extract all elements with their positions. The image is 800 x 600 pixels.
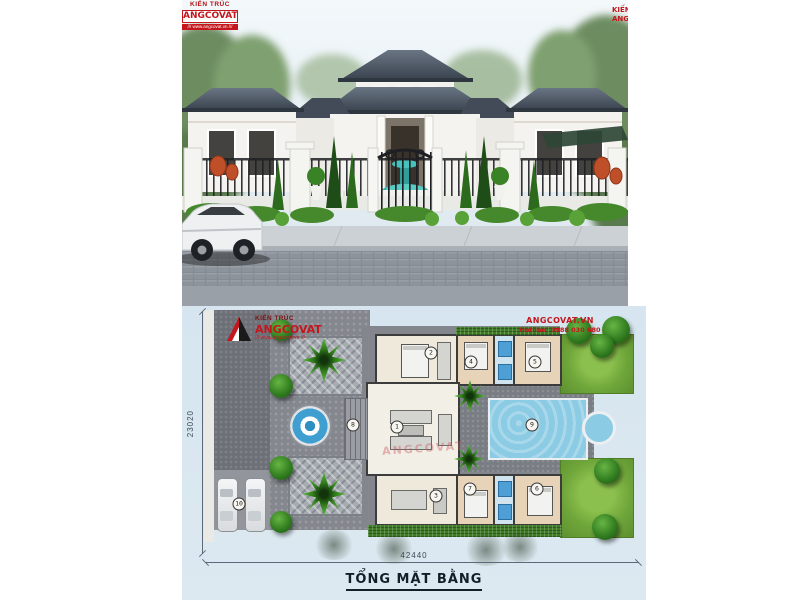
room-marker-5: 5 bbox=[529, 356, 542, 369]
room-marker-1: 1 bbox=[391, 421, 404, 434]
plan-logo-strip: /// www.angcovat.vn /// bbox=[255, 336, 322, 341]
dining-table bbox=[391, 490, 427, 510]
plan-title: TỔNG MẶT BẰNG bbox=[346, 572, 483, 591]
bathtub bbox=[498, 364, 512, 380]
tree bbox=[592, 514, 618, 540]
room-marker-7: 7 bbox=[464, 483, 477, 496]
plan-title-wrap: TỔNG MẶT BẰNG bbox=[182, 570, 646, 591]
swimming-pool bbox=[488, 398, 588, 460]
plan-firm-logo: KIẾN TRÚC ANGCOVAT /// www.angcovat.vn /… bbox=[226, 316, 346, 342]
corner-line2: ANGCOVAT bbox=[612, 15, 628, 24]
dimension-height-label: 23020 bbox=[186, 410, 195, 437]
room-marker-2: 2 bbox=[425, 347, 438, 360]
plan-contact: ANGCOVAT.VN Hotline: 0988 030 680 bbox=[500, 316, 620, 334]
room-marker-3: 3 bbox=[430, 490, 443, 503]
wardrobe bbox=[437, 342, 451, 380]
corner-line1: KIẾN TRÚC bbox=[612, 6, 628, 15]
tree bbox=[270, 511, 292, 533]
bathtub bbox=[498, 504, 512, 520]
firm-logo-prefix: KIẾN TRÚC bbox=[182, 2, 238, 9]
bedroom-master bbox=[375, 334, 458, 386]
dimension-line-horizontal bbox=[205, 562, 639, 563]
room-marker-4: 4 bbox=[465, 356, 478, 369]
contact-phone: Hotline: 0988 030 680 bbox=[500, 326, 620, 334]
firm-logo-strip: /// www.angcovat.vn /// bbox=[182, 24, 238, 31]
firm-logo: KIẾN TRÚC ANGCOVAT /// www.angcovat.vn /… bbox=[182, 2, 238, 30]
contact-site: ANGCOVAT.VN bbox=[500, 316, 620, 326]
spa-circle bbox=[582, 411, 616, 445]
bathtub bbox=[498, 341, 512, 357]
bathtub bbox=[498, 481, 512, 497]
dimension-width-label: 42440 bbox=[182, 551, 646, 560]
plan-logo-prefix: KIẾN TRÚC bbox=[255, 316, 322, 323]
architecture-presentation: KIẾN TRÚC ANGCOVAT /// www.angcovat.vn /… bbox=[0, 0, 800, 600]
plan-sidewalk bbox=[204, 310, 214, 542]
site-plan-panel: KIẾN TRÚC ANGCOVAT /// www.angcovat.vn /… bbox=[182, 306, 646, 600]
villa-exterior-render: KIẾN TRÚC ANGCOVAT /// www.angcovat.vn /… bbox=[182, 0, 628, 306]
parked-car bbox=[245, 478, 266, 532]
palm-tree bbox=[302, 472, 346, 516]
palm-tree bbox=[302, 338, 346, 382]
firm-logo-mark bbox=[226, 316, 252, 342]
villa-illustration bbox=[182, 0, 628, 306]
dimension-line-vertical bbox=[202, 311, 203, 554]
tree bbox=[269, 374, 293, 398]
tree bbox=[594, 458, 620, 484]
corner-watermark: KIẾN TRÚC ANGCOVAT bbox=[612, 6, 628, 24]
tree bbox=[590, 334, 614, 358]
living-room bbox=[366, 382, 460, 476]
room-marker-8: 8 bbox=[347, 419, 360, 432]
room-marker-9: 9 bbox=[526, 419, 539, 432]
fountain bbox=[290, 406, 330, 446]
tree bbox=[269, 456, 293, 480]
firm-logo-name: ANGCOVAT bbox=[182, 10, 238, 23]
dining-room bbox=[375, 474, 458, 526]
room-marker-6: 6 bbox=[531, 483, 544, 496]
bedroom-4 bbox=[456, 474, 496, 526]
plan-logo-name: ANGCOVAT bbox=[255, 324, 322, 335]
room-marker-10: 10 bbox=[233, 498, 246, 511]
